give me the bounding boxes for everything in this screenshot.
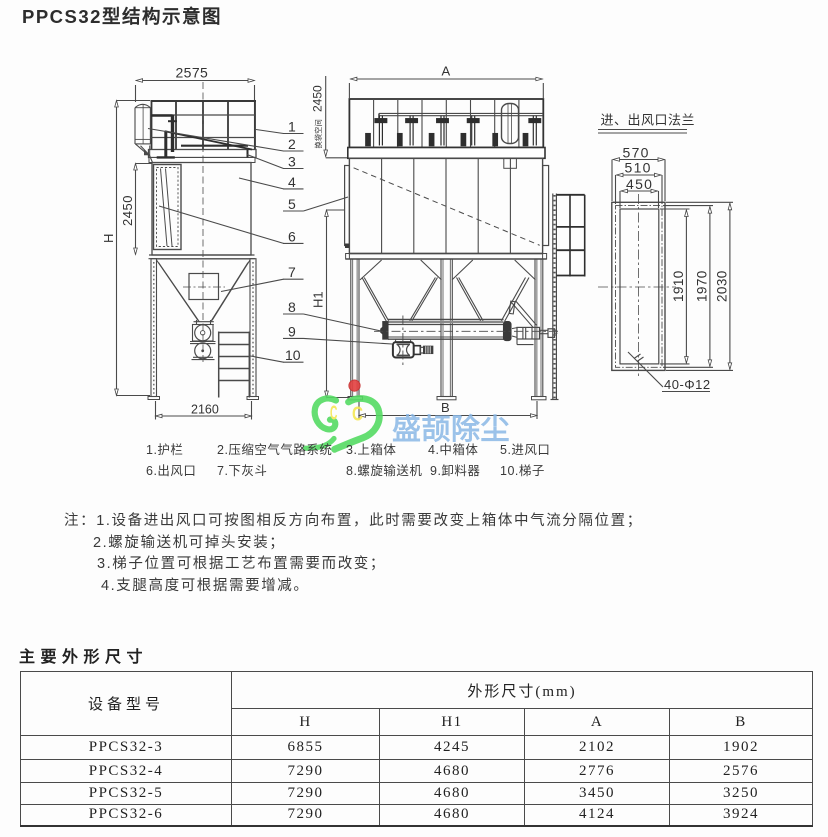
svg-text:A: A [442,64,451,79]
svg-text:2: 2 [288,136,296,152]
svg-text:C: C [330,402,338,425]
svg-text:B: B [441,400,450,415]
svg-text:1: 1 [288,119,296,135]
svg-text:换袋空间: 换袋空间 [314,119,323,149]
svg-text:2575: 2575 [176,65,209,81]
svg-text:40-Φ12: 40-Φ12 [664,377,711,392]
svg-text:1970: 1970 [695,270,710,302]
svg-text:5: 5 [288,196,296,212]
svg-text:2450: 2450 [311,85,325,112]
svg-text:H1: H1 [311,291,326,308]
svg-text:10: 10 [285,347,301,363]
svg-text:8: 8 [288,299,296,315]
svg-text:2450: 2450 [120,195,135,226]
svg-text:H: H [101,234,116,243]
svg-text:6: 6 [288,228,296,244]
svg-text:进、出风口法兰: 进、出风口法兰 [601,113,696,128]
svg-text:450: 450 [626,176,653,192]
svg-text:C: C [352,402,363,425]
svg-text:2160: 2160 [191,403,219,417]
svg-text:510: 510 [625,160,652,176]
svg-text:1910: 1910 [671,270,686,302]
svg-text:9: 9 [288,323,296,339]
svg-text:570: 570 [623,145,650,161]
svg-text:3: 3 [288,154,296,170]
svg-text:7: 7 [288,264,296,280]
svg-text:2030: 2030 [715,270,730,302]
svg-text:4: 4 [288,174,296,190]
